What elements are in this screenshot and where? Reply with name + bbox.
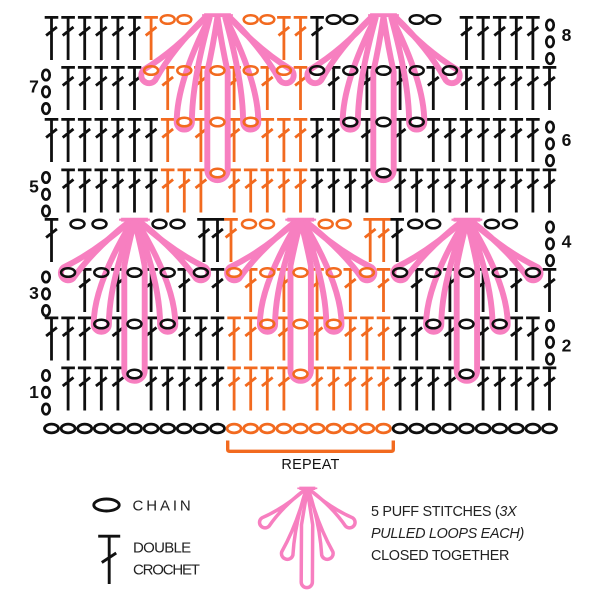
svg-text:5 PUFF STITCHES (3X: 5 PUFF STITCHES (3X xyxy=(371,504,518,520)
svg-text:REPEAT: REPEAT xyxy=(281,457,339,473)
svg-text:CROCHET: CROCHET xyxy=(133,562,200,579)
svg-text:1: 1 xyxy=(29,382,39,402)
svg-text:PULLED LOOPS EACH): PULLED LOOPS EACH) xyxy=(371,526,524,542)
svg-text:CLOSED TOGETHER: CLOSED TOGETHER xyxy=(371,548,509,564)
svg-text:5: 5 xyxy=(29,177,39,197)
svg-text:8: 8 xyxy=(562,25,572,45)
svg-text:CHAIN: CHAIN xyxy=(133,498,194,515)
svg-text:7: 7 xyxy=(29,77,39,97)
svg-text:4: 4 xyxy=(562,232,572,252)
svg-text:DOUBLE: DOUBLE xyxy=(133,540,191,557)
svg-text:6: 6 xyxy=(562,130,572,150)
svg-text:2: 2 xyxy=(562,336,572,356)
svg-text:3: 3 xyxy=(29,283,39,303)
